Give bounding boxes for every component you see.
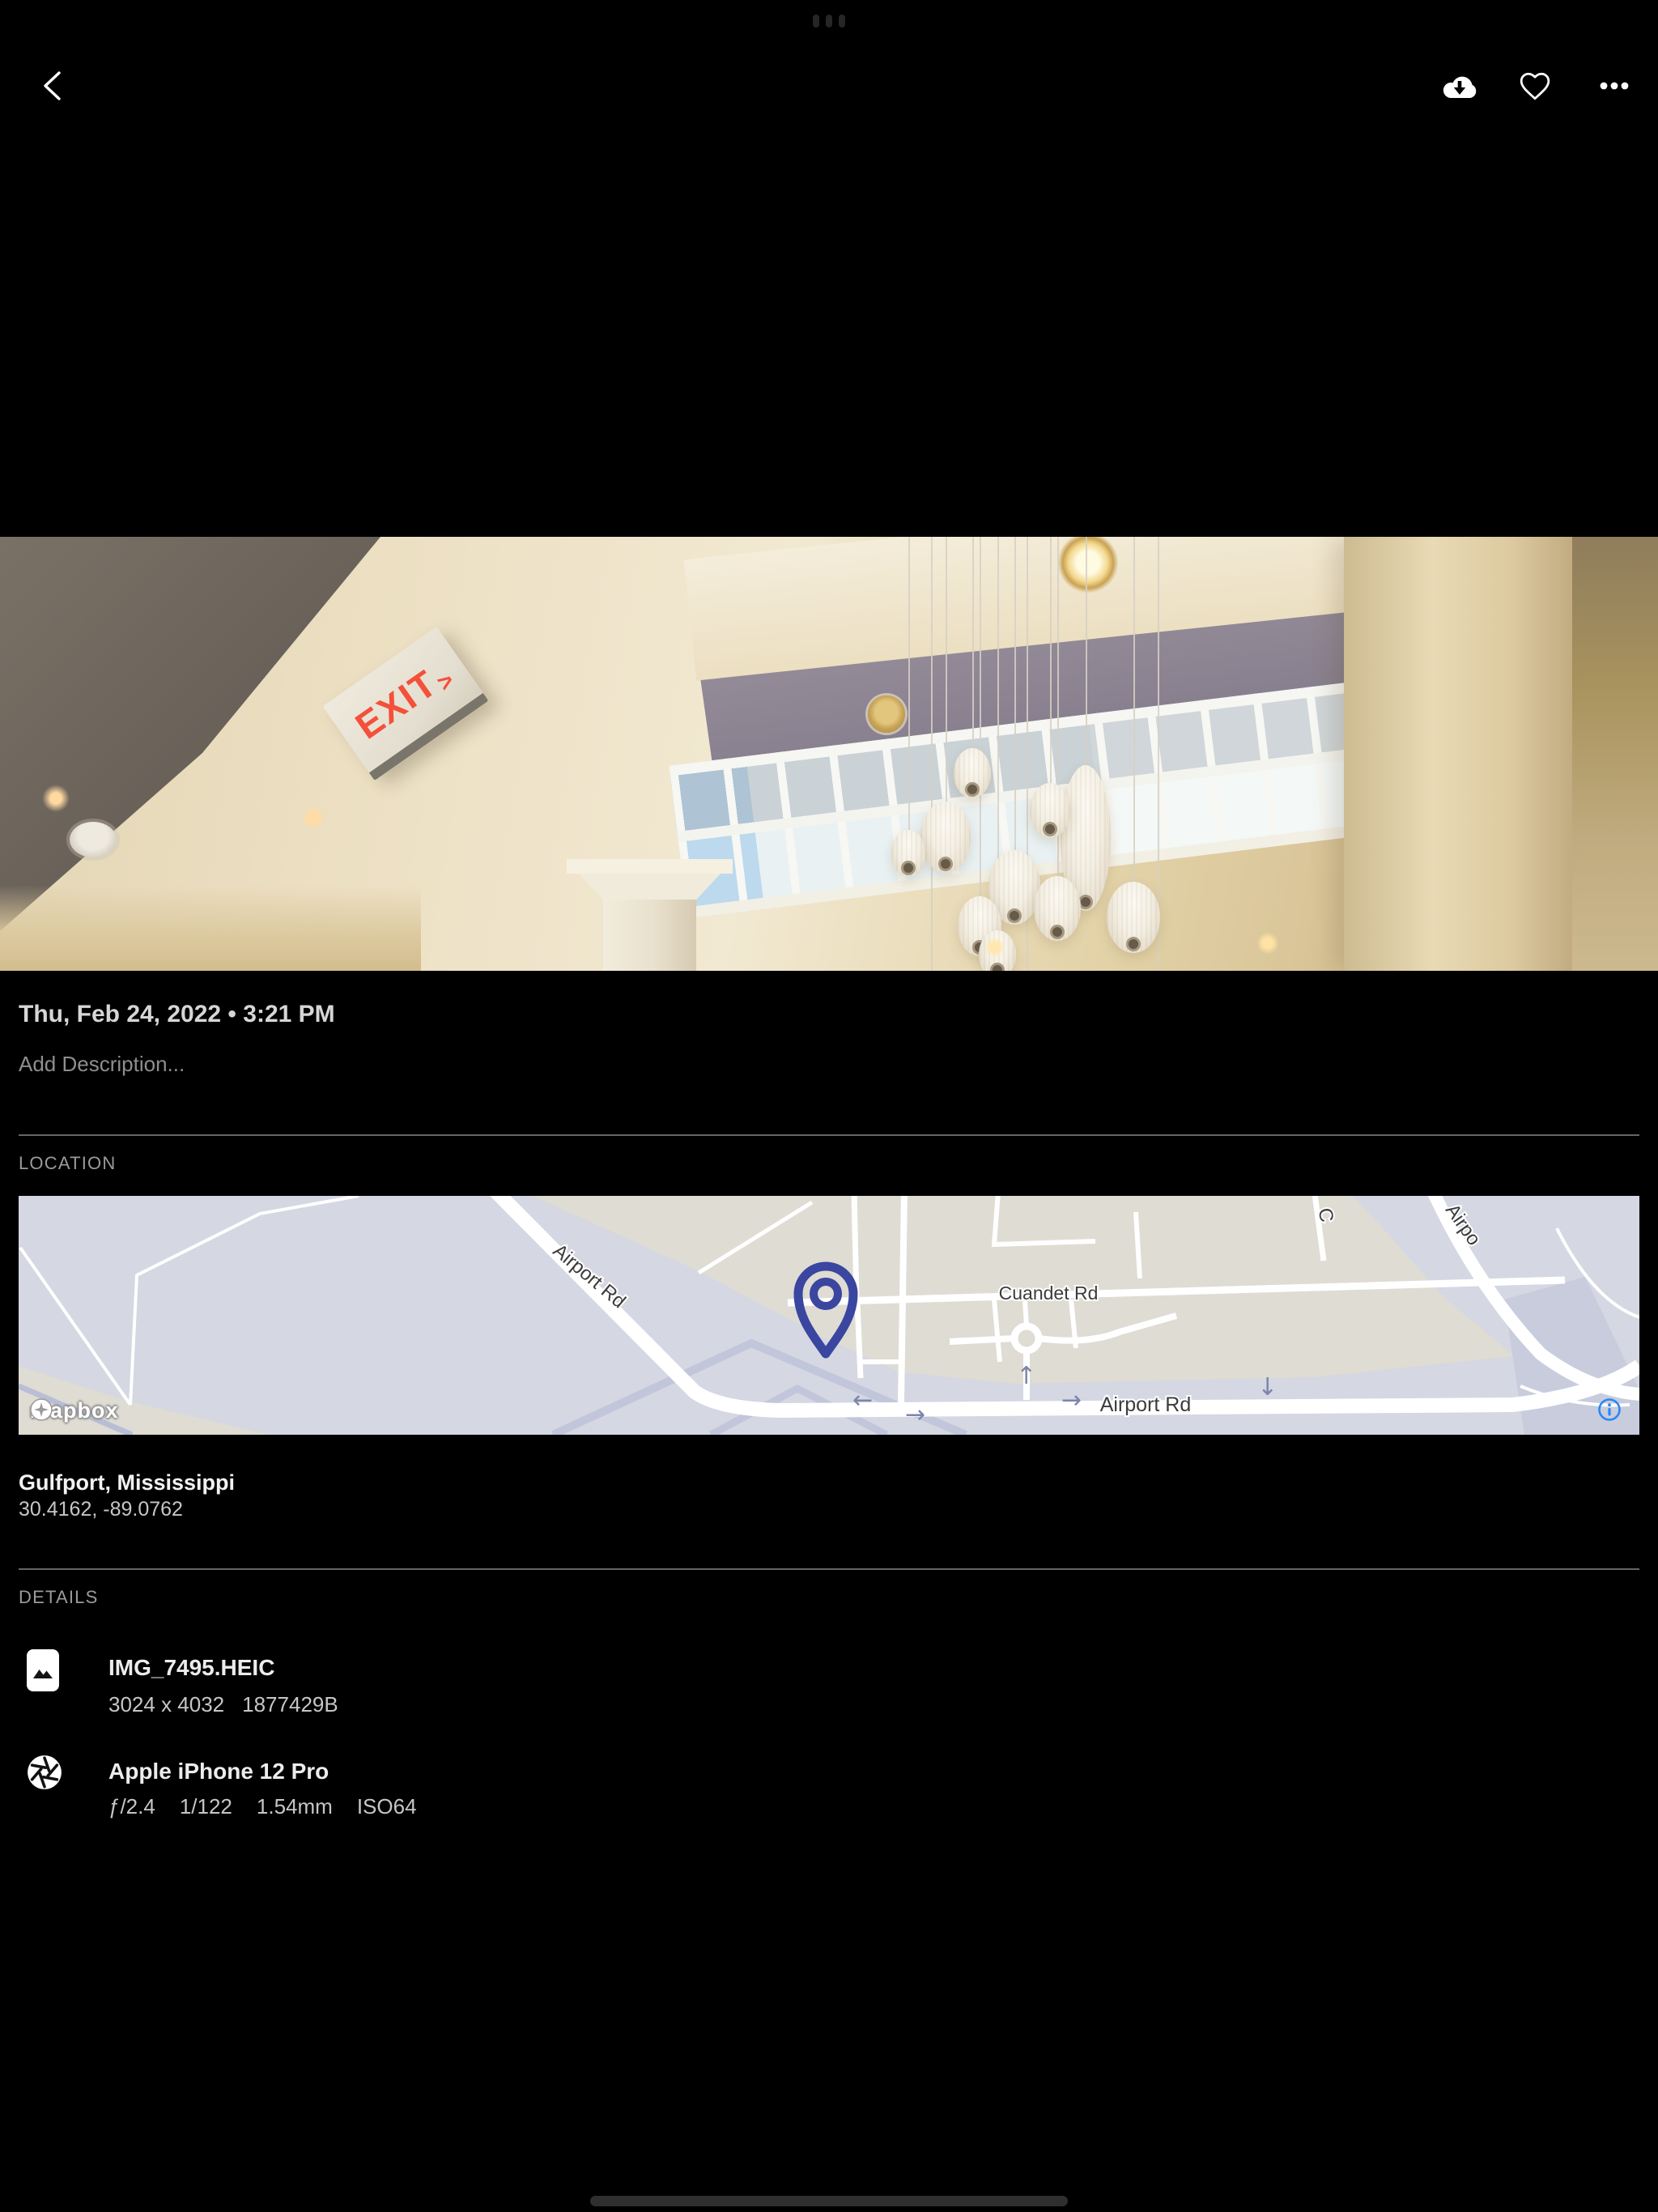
map-arrow-right: → <box>1061 1386 1082 1414</box>
location-coordinates: 30.4162, -89.0762 <box>19 1498 183 1521</box>
camera-exif: ƒ/2.4 1/122 1.54mm ISO64 <box>108 1794 417 1819</box>
photo-exit-sign: EXIT > <box>322 627 488 781</box>
map-arrow-right: → <box>905 1401 925 1429</box>
photo-column-capital <box>579 874 721 900</box>
photo-wall-lamp <box>301 806 325 830</box>
camera-name: Apple iPhone 12 Pro <box>108 1759 329 1784</box>
home-indicator[interactable] <box>590 2196 1068 2206</box>
add-description-field[interactable]: Add Description... <box>19 1052 185 1077</box>
multitask-indicator-icon[interactable] <box>813 15 845 28</box>
section-divider <box>19 1568 1639 1570</box>
camera-aperture-icon <box>26 1754 63 1791</box>
map-label-airport-rd-lower: Airport Rd <box>1100 1393 1192 1416</box>
lamp-cable <box>908 537 910 830</box>
lamp-cable <box>1086 537 1087 765</box>
pendant-lamp <box>891 830 925 877</box>
lamp-cable <box>1133 537 1135 882</box>
pendant-lamp <box>954 748 991 798</box>
exif-iso: ISO64 <box>357 1794 417 1819</box>
indicator-dot <box>839 15 845 28</box>
ellipsis-icon <box>1600 81 1629 91</box>
map-info-button[interactable] <box>1597 1397 1622 1422</box>
map-arrow-left: ← <box>852 1386 873 1414</box>
chevron-left-icon <box>40 70 65 102</box>
photo-viewer[interactable]: EXIT > <box>0 537 1658 971</box>
photo-right-wall <box>1572 537 1658 971</box>
info-icon <box>1597 1397 1622 1422</box>
map-arrow-up: ↑ <box>1016 1362 1036 1390</box>
exif-aperture: ƒ/2.4 <box>108 1794 155 1819</box>
map-attribution[interactable]: mapbox <box>30 1398 119 1423</box>
location-place: Gulfport, Mississippi <box>19 1470 235 1495</box>
map-arrow-down: ↓ <box>1257 1373 1278 1402</box>
more-options-button[interactable] <box>1600 81 1629 91</box>
back-button[interactable] <box>40 70 65 102</box>
photo-downlight <box>984 937 1005 958</box>
pendant-lamp <box>920 802 971 873</box>
photo-smoke-detector <box>70 822 117 857</box>
mapbox-logo-icon <box>30 1398 53 1421</box>
lamp-cable <box>1050 537 1052 783</box>
photo-wall-lamp <box>42 785 70 812</box>
photo-lower-wall <box>0 885 421 971</box>
photo-file-icon <box>26 1648 60 1692</box>
lamp-cable <box>931 537 933 971</box>
file-dimensions: 3024 x 4032 <box>108 1692 224 1717</box>
lamp-cable <box>946 537 947 802</box>
section-divider <box>19 1134 1639 1136</box>
map-canvas: ← → → ↑ ↓ Airport Rd Cuandet Rd Airport … <box>19 1196 1639 1435</box>
photo-detail-screen: EXIT > Thu, Feb 24, 2022 • 3:21 PM Add D… <box>0 0 1658 2212</box>
photo-right-column <box>1344 537 1579 971</box>
file-meta: 3024 x 4032 1877429B <box>108 1692 338 1717</box>
map-label-cuandet-rd: Cuandet Rd <box>999 1283 1099 1304</box>
photo-column <box>603 900 696 971</box>
photo-ceiling-disc <box>868 696 905 733</box>
download-button[interactable] <box>1441 73 1478 100</box>
file-name: IMG_7495.HEIC <box>108 1655 274 1681</box>
lamp-cable <box>980 537 981 896</box>
photo-downlight <box>1256 932 1279 955</box>
indicator-dot <box>826 15 832 28</box>
cloud-download-icon <box>1441 73 1478 100</box>
lamp-cable <box>972 537 974 748</box>
heart-icon <box>1519 71 1551 102</box>
file-size: 1877429B <box>242 1692 338 1717</box>
pendant-lamp <box>1034 876 1081 941</box>
favorite-button[interactable] <box>1519 71 1551 102</box>
location-header: LOCATION <box>19 1153 116 1174</box>
photo-column-capital <box>567 859 733 874</box>
exit-sign-text: EXIT <box>347 661 445 747</box>
exif-shutter: 1/122 <box>180 1794 232 1819</box>
exif-focal-length: 1.54mm <box>257 1794 333 1819</box>
location-map[interactable]: ← → → ↑ ↓ Airport Rd Cuandet Rd Airport … <box>19 1196 1639 1435</box>
photo-date: Thu, Feb 24, 2022 • 3:21 PM <box>19 1001 335 1028</box>
details-header: DETAILS <box>19 1587 98 1608</box>
indicator-dot <box>813 15 819 28</box>
lamp-cable <box>1014 537 1016 850</box>
pendant-lamp <box>1030 783 1070 838</box>
pendant-lamp <box>1107 882 1160 953</box>
